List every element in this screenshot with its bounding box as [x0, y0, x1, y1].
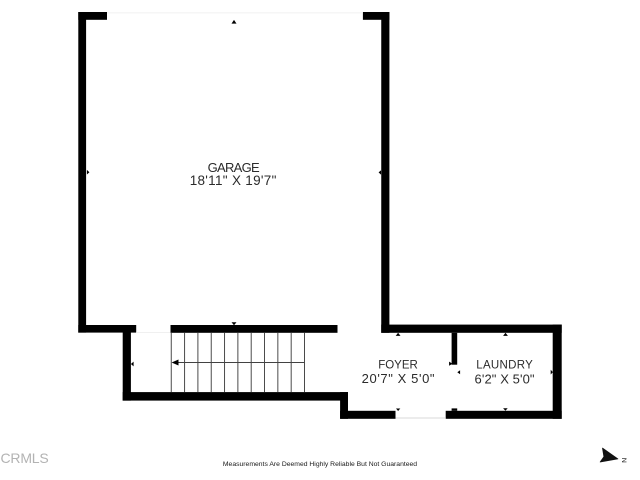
svg-text:N: N	[620, 458, 627, 463]
svg-text:Measurements Are Deemed Highly: Measurements Are Deemed Highly Reliable …	[223, 461, 417, 468]
svg-text:6'2" X 5'0": 6'2" X 5'0"	[475, 371, 535, 386]
svg-text:CRMLS: CRMLS	[1, 450, 49, 466]
svg-text:LAUNDRY: LAUNDRY	[476, 360, 533, 372]
svg-text:20'7" X 5'0": 20'7" X 5'0"	[362, 371, 435, 386]
svg-text:FOYER: FOYER	[378, 360, 418, 372]
svg-text:18'11" X 19'7": 18'11" X 19'7"	[190, 173, 277, 188]
